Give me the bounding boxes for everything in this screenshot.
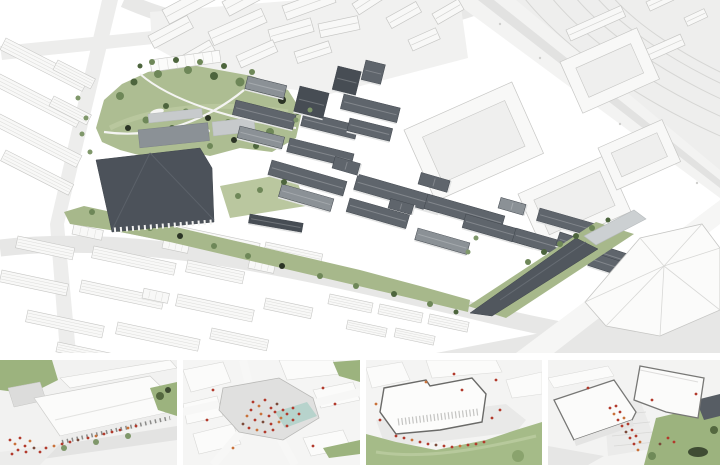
person xyxy=(286,425,289,428)
tree xyxy=(281,179,287,185)
person xyxy=(262,421,265,424)
person xyxy=(39,451,42,454)
tree xyxy=(648,452,656,460)
person xyxy=(19,437,22,440)
person xyxy=(425,381,428,384)
tree xyxy=(156,392,164,400)
tree xyxy=(125,433,131,439)
tree xyxy=(88,150,93,155)
thumbnail-gateway-buildings xyxy=(548,360,720,465)
person xyxy=(651,399,654,402)
person xyxy=(375,403,378,406)
person xyxy=(623,417,626,420)
person xyxy=(322,387,325,390)
person xyxy=(619,411,622,414)
tree xyxy=(149,59,155,65)
person xyxy=(252,401,255,404)
tree xyxy=(61,445,67,451)
person xyxy=(256,429,259,432)
person xyxy=(459,445,462,448)
person xyxy=(411,439,414,442)
person xyxy=(250,409,253,412)
person xyxy=(621,425,624,428)
tree xyxy=(76,96,81,101)
tree xyxy=(353,283,359,289)
tree xyxy=(541,249,547,255)
person xyxy=(483,441,486,444)
thumbnail-market-hall xyxy=(0,360,177,465)
person xyxy=(292,419,295,422)
person xyxy=(258,405,261,408)
person xyxy=(242,423,245,426)
person xyxy=(260,413,263,416)
person xyxy=(25,451,28,454)
person xyxy=(615,405,618,408)
person xyxy=(475,443,478,446)
person xyxy=(17,449,20,452)
person xyxy=(276,403,279,406)
tree xyxy=(131,79,138,86)
person xyxy=(53,445,56,448)
tree xyxy=(317,273,323,279)
person xyxy=(627,423,630,426)
person xyxy=(24,445,27,448)
tree xyxy=(80,132,85,137)
person xyxy=(625,431,628,434)
tree xyxy=(235,193,241,199)
street-marker xyxy=(539,57,541,59)
person xyxy=(292,407,295,410)
person xyxy=(103,433,106,436)
person xyxy=(467,444,470,447)
tree xyxy=(257,187,263,193)
person xyxy=(282,409,285,412)
person xyxy=(14,443,17,446)
person xyxy=(334,403,337,406)
person xyxy=(631,429,634,432)
person xyxy=(395,435,398,438)
person xyxy=(77,439,80,442)
person xyxy=(312,445,315,448)
tree xyxy=(454,310,459,315)
masterplan-board xyxy=(0,0,720,465)
street-marker xyxy=(499,23,501,25)
person xyxy=(61,443,64,446)
person xyxy=(637,449,640,452)
tree xyxy=(294,118,299,123)
person xyxy=(270,407,273,410)
person xyxy=(264,399,267,402)
person xyxy=(461,389,464,392)
person xyxy=(206,419,209,422)
person xyxy=(248,427,251,430)
tree xyxy=(466,250,471,255)
person xyxy=(119,429,122,432)
person xyxy=(298,413,301,416)
tree xyxy=(557,241,563,247)
person xyxy=(45,447,48,450)
person xyxy=(274,411,277,414)
person xyxy=(635,435,638,438)
person xyxy=(87,437,90,440)
tree xyxy=(125,125,131,131)
tree xyxy=(249,69,255,75)
person xyxy=(451,446,454,449)
tree xyxy=(184,66,192,74)
person xyxy=(232,447,235,450)
person xyxy=(278,421,281,424)
thumbnails-row xyxy=(0,360,720,465)
bush xyxy=(688,447,708,457)
person xyxy=(695,393,698,396)
person xyxy=(435,444,438,447)
person xyxy=(617,419,620,422)
tree xyxy=(573,233,579,239)
person xyxy=(254,419,257,422)
person xyxy=(659,443,662,446)
tree xyxy=(205,115,211,121)
tree xyxy=(589,225,595,231)
market-hall xyxy=(96,148,214,232)
person xyxy=(629,437,632,440)
tree xyxy=(207,143,213,149)
person xyxy=(443,445,446,448)
person xyxy=(272,429,275,432)
person xyxy=(587,387,590,390)
tree xyxy=(221,63,227,69)
tree xyxy=(116,92,124,100)
person xyxy=(403,437,406,440)
person xyxy=(268,415,271,418)
person xyxy=(453,373,456,376)
bush xyxy=(710,426,718,434)
person xyxy=(427,443,430,446)
tree xyxy=(231,137,237,143)
person xyxy=(95,435,98,438)
tree xyxy=(279,263,285,269)
person xyxy=(270,423,273,426)
person xyxy=(379,419,382,422)
person xyxy=(499,409,502,412)
person xyxy=(9,439,12,442)
street-marker xyxy=(619,123,621,125)
person xyxy=(613,413,616,416)
person xyxy=(286,413,289,416)
person xyxy=(667,437,670,440)
person xyxy=(212,389,215,392)
tree xyxy=(236,78,245,87)
tree xyxy=(173,57,179,63)
person xyxy=(639,441,642,444)
person xyxy=(127,427,130,430)
tree xyxy=(154,70,162,78)
thumbnail-park-building xyxy=(366,360,542,465)
person xyxy=(11,453,14,456)
tree xyxy=(245,253,251,259)
person xyxy=(29,440,32,443)
tree xyxy=(427,301,433,307)
main-render xyxy=(0,0,720,353)
street-marker xyxy=(696,182,698,184)
thumbnail-central-plaza xyxy=(183,360,360,465)
person xyxy=(633,443,636,446)
tree xyxy=(84,116,89,121)
person xyxy=(419,441,422,444)
person xyxy=(111,431,114,434)
tree xyxy=(165,387,171,393)
tree xyxy=(474,236,479,241)
person xyxy=(491,417,494,420)
person xyxy=(135,425,138,428)
tree xyxy=(138,64,143,69)
tree xyxy=(525,259,531,265)
person xyxy=(495,379,498,382)
tree xyxy=(391,291,397,297)
tree xyxy=(89,209,95,215)
person xyxy=(673,441,676,444)
tree xyxy=(177,233,183,239)
tree xyxy=(308,108,313,113)
tree xyxy=(163,103,169,109)
person xyxy=(69,441,72,444)
person xyxy=(246,415,249,418)
tree xyxy=(606,218,611,223)
person xyxy=(33,447,36,450)
tree xyxy=(197,59,203,65)
tree xyxy=(211,243,217,249)
person xyxy=(280,417,283,420)
tree xyxy=(93,439,99,445)
tree xyxy=(210,72,218,80)
lawn-shade xyxy=(512,450,524,462)
person xyxy=(609,407,612,410)
person xyxy=(264,431,267,434)
